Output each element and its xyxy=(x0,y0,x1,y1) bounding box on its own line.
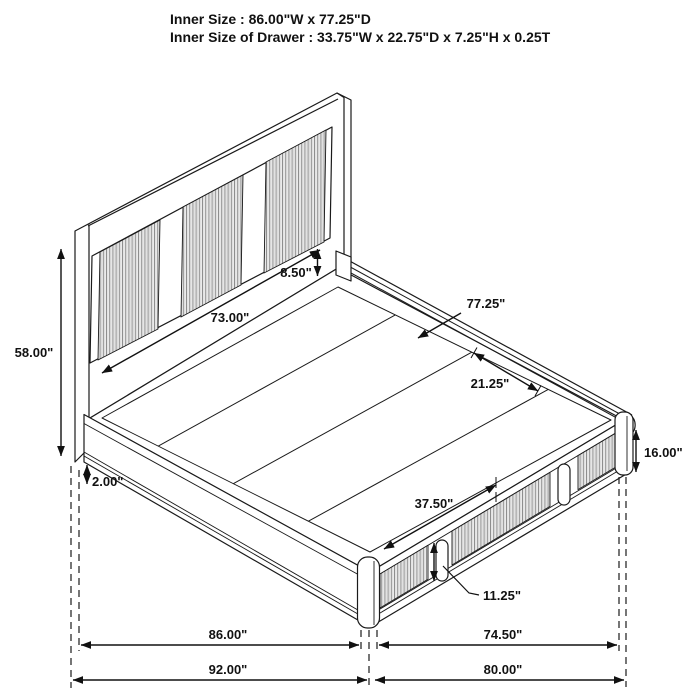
title-block: Inner Size : 86.00"W x 77.25"D Inner Siz… xyxy=(170,11,551,45)
dim-label-foot-height: 16.00" xyxy=(644,445,683,460)
front-corner-post xyxy=(358,557,380,628)
dim-label-drawer-width: 37.50" xyxy=(415,496,454,511)
dim-label-width-inner: 86.00" xyxy=(209,627,248,642)
dim-label-rail-height: 8.50" xyxy=(280,265,311,280)
dim-label-panel-depth: 21.25" xyxy=(471,376,510,391)
dim-label-depth-overall: 80.00" xyxy=(484,662,523,677)
right-corner-post xyxy=(615,412,633,475)
diagram-canvas: 58.00" 8.50" 73.00" 77.25" 21.25" 16.00"… xyxy=(0,0,700,700)
drawer-handle xyxy=(558,464,570,505)
dim-label-depth-inner: 74.50" xyxy=(484,627,523,642)
dim-label-base-clearance: 2.00" xyxy=(92,474,123,489)
dim-label-headboard-height: 58.00" xyxy=(15,345,54,360)
dim-label-inner-depth: 77.25" xyxy=(467,296,506,311)
title-line-2: Inner Size of Drawer : 33.75"W x 22.75"D… xyxy=(170,29,551,45)
dim-label-handle-height: 11.25" xyxy=(483,588,521,603)
side-rail-start-cap xyxy=(336,251,351,281)
dim-label-width-overall: 92.00" xyxy=(209,662,248,677)
dim-label-inner-width: 73.00" xyxy=(211,310,250,325)
drawer-handle xyxy=(436,540,448,581)
bed-dimension-diagram: 58.00" 8.50" 73.00" 77.25" 21.25" 16.00"… xyxy=(0,0,700,700)
title-line-1: Inner Size : 86.00"W x 77.25"D xyxy=(170,11,371,27)
